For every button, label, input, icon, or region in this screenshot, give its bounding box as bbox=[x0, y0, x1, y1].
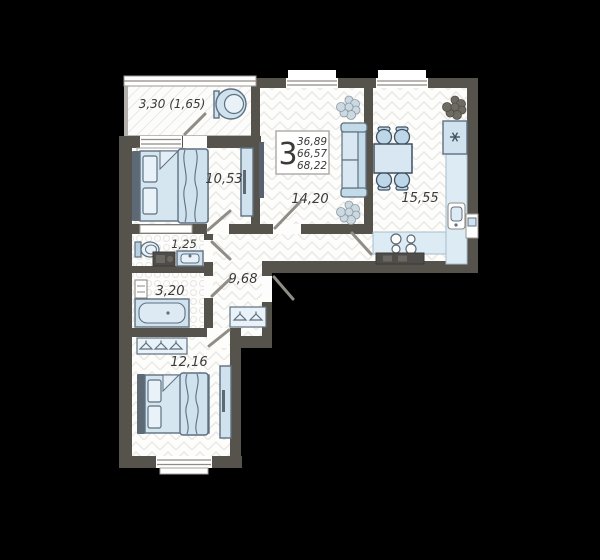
hanger-rack-icon bbox=[137, 338, 187, 354]
room-label-kitchen: 15,55 bbox=[401, 191, 438, 206]
bed-icon bbox=[132, 149, 208, 223]
wall-niche bbox=[140, 225, 192, 233]
shaft-niche bbox=[466, 214, 478, 238]
door-opening-balcony bbox=[183, 136, 207, 148]
sofa-icon bbox=[341, 123, 367, 197]
wardrobe-icon bbox=[220, 366, 231, 438]
kitchen-sink-icon bbox=[448, 203, 465, 229]
balcony-chair-icon bbox=[214, 89, 246, 119]
fridge-icon bbox=[443, 121, 467, 154]
living-area-value: 36,89 bbox=[297, 136, 327, 148]
room-label-hallway: 9,68 bbox=[229, 272, 258, 287]
floor-plan: 3 36,89 66,57 68,22 3,30 (1,65) 10,53 14… bbox=[0, 0, 600, 560]
room-label-bedroom-2: 12,16 bbox=[170, 355, 207, 370]
room-label-living: 14,20 bbox=[291, 192, 328, 207]
summary-box: 3 36,89 66,57 68,22 bbox=[276, 131, 329, 174]
floor-plan-canvas: 3 36,89 66,57 68,22 3,30 (1,65) 10,53 14… bbox=[0, 0, 600, 560]
window-balcony bbox=[140, 136, 182, 148]
window-bedroom-2 bbox=[156, 456, 212, 468]
hanger-rack-icon bbox=[230, 307, 266, 327]
window-living bbox=[286, 78, 338, 88]
room-label-bathroom: 3,20 bbox=[156, 284, 185, 299]
bed-icon bbox=[137, 373, 209, 435]
bathtub-icon bbox=[135, 299, 189, 327]
total-area-value: 68,22 bbox=[297, 160, 327, 172]
room-label-wc: 1,25 bbox=[171, 237, 197, 251]
washing-machine-icon bbox=[153, 252, 175, 266]
entrance-door-opening bbox=[262, 276, 272, 302]
area-without-balcony-value: 66,57 bbox=[297, 148, 327, 160]
sink-icon bbox=[177, 251, 203, 266]
oven-icon bbox=[376, 253, 424, 264]
room-label-balcony: 3,30 (1,65) bbox=[139, 97, 206, 111]
wardrobe-icon bbox=[241, 148, 253, 216]
rooms-count: 3 bbox=[278, 137, 297, 172]
window-sill bbox=[160, 468, 208, 474]
window-bay bbox=[378, 70, 426, 78]
room-label-bedroom-1: 10,53 bbox=[205, 172, 242, 187]
water-heater-icon bbox=[135, 280, 147, 298]
window-kitchen bbox=[376, 78, 428, 88]
window-bay bbox=[288, 70, 336, 78]
tv-icon bbox=[259, 142, 264, 198]
